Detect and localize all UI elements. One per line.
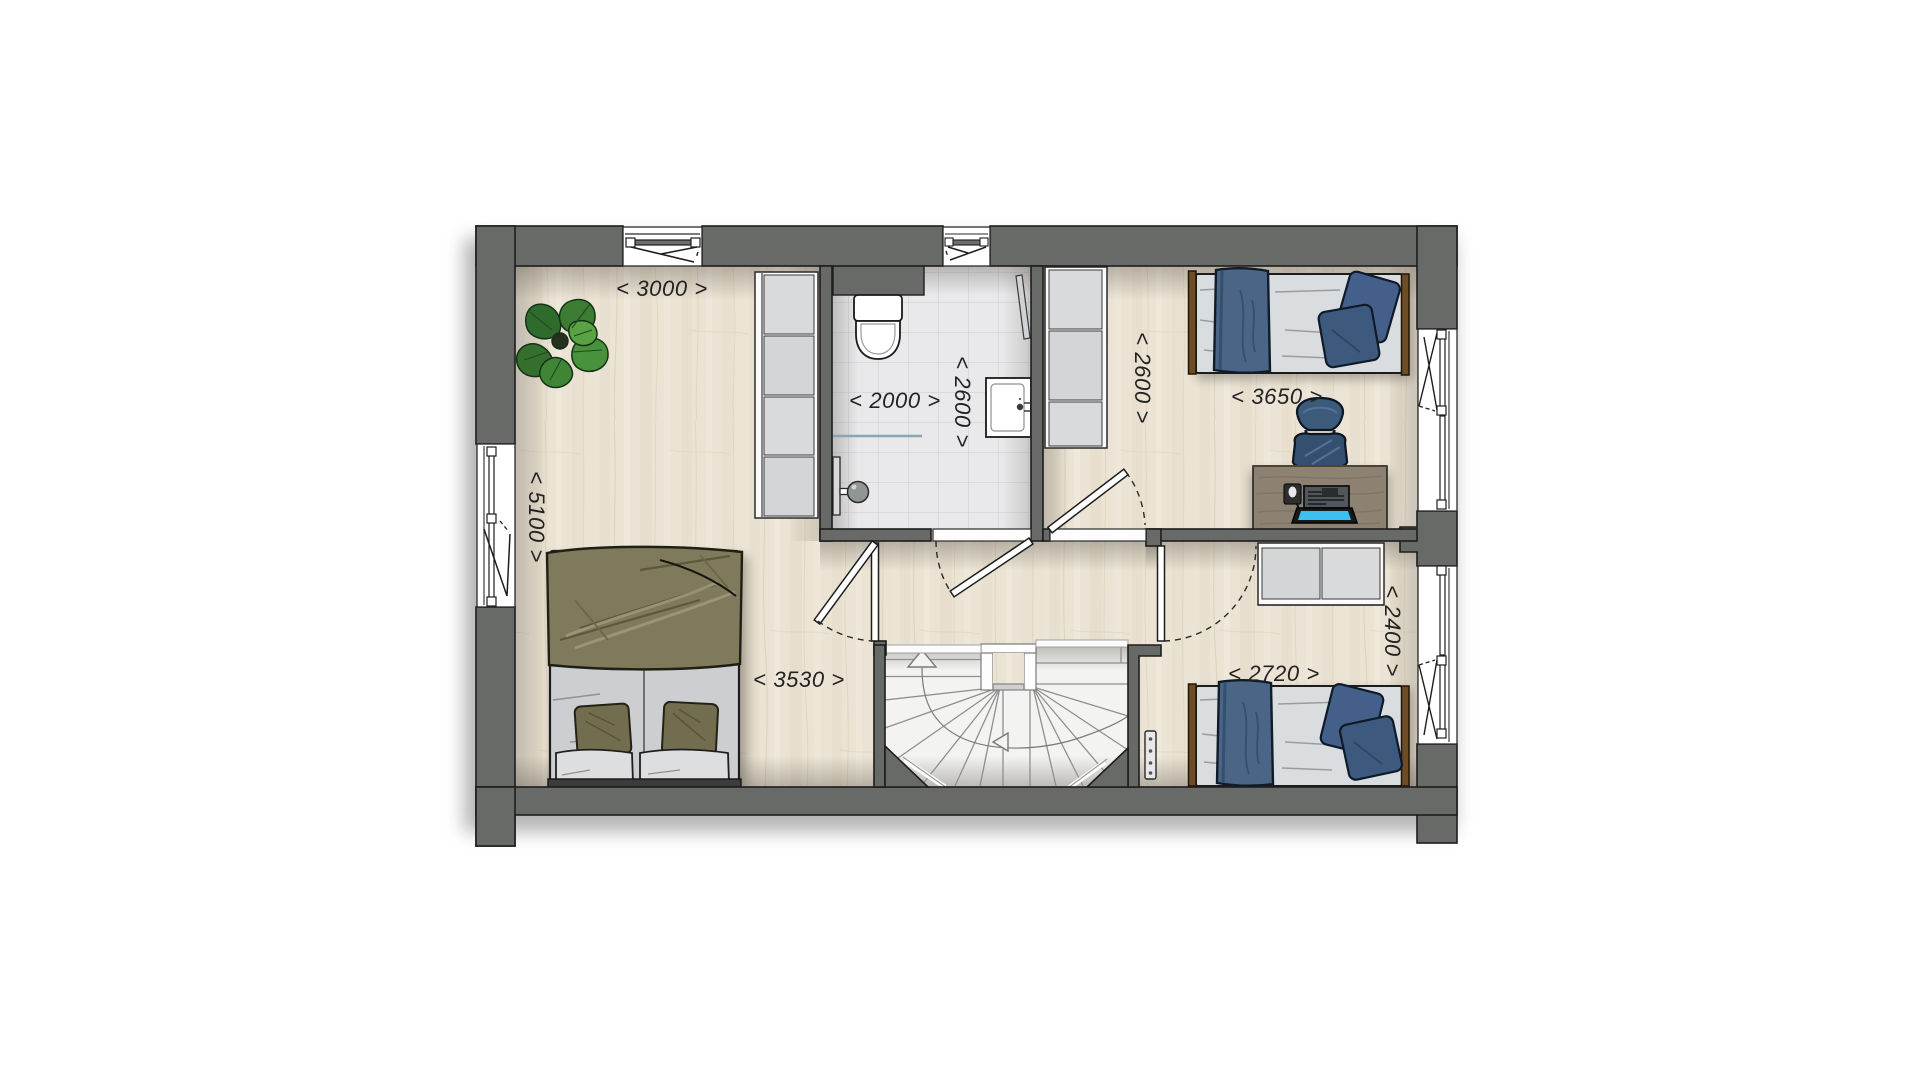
svg-text:< 2400 >: < 2400 > — [1380, 585, 1405, 677]
svg-text:< 2600 >: < 2600 > — [950, 356, 975, 448]
svg-text:< 3650 >: < 3650 > — [1231, 384, 1323, 409]
svg-text:< 2720 >: < 2720 > — [1228, 661, 1320, 686]
svg-text:< 3530 >: < 3530 > — [753, 667, 845, 692]
svg-text:< 3000 >: < 3000 > — [616, 276, 708, 301]
svg-text:< 2600 >: < 2600 > — [1130, 332, 1155, 424]
svg-text:< 5100 >: < 5100 > — [524, 471, 549, 563]
svg-text:< 2000 >: < 2000 > — [849, 388, 941, 413]
